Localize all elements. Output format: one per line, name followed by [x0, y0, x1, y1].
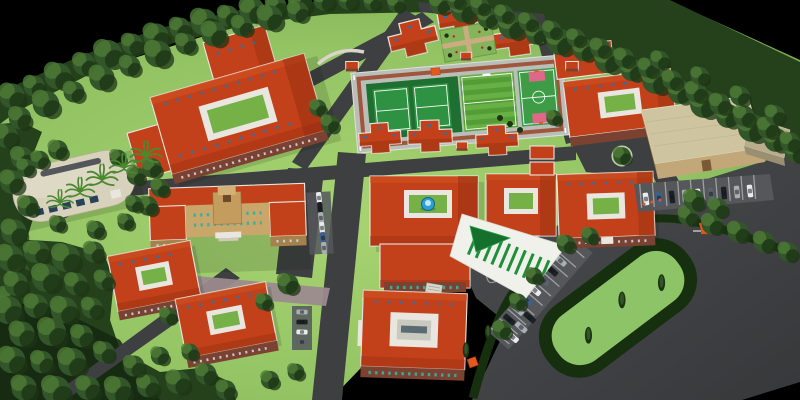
right-wing-roof	[269, 201, 306, 236]
conifer-tree	[485, 325, 491, 339]
campus-render-stage	[0, 0, 800, 400]
campus-aerial-render	[0, 0, 800, 400]
car	[296, 320, 307, 325]
small-parking-south	[292, 306, 312, 350]
hall-door	[701, 159, 711, 171]
garden-pavilion	[346, 62, 359, 72]
car	[721, 186, 727, 199]
south-courtyard-building	[356, 290, 471, 381]
conifer-tree	[585, 327, 592, 344]
traffic-cone	[659, 199, 662, 202]
basketball-hoop	[534, 70, 538, 72]
hedge-bush	[507, 121, 513, 127]
pitch-kiosk	[431, 68, 441, 76]
basketball-hoop	[539, 122, 543, 124]
entrance-canopy	[215, 232, 241, 239]
traffic-cone	[643, 203, 646, 206]
garden-pavilion	[461, 52, 472, 60]
traffic-cone	[651, 201, 654, 204]
car	[296, 329, 307, 334]
garden-pavilion	[566, 62, 579, 72]
admin-street-parking	[306, 191, 333, 254]
car	[296, 340, 307, 345]
garden-pavilion	[456, 142, 467, 151]
car	[296, 309, 307, 314]
conifer-tree	[618, 292, 625, 309]
hedge-bush	[517, 127, 523, 133]
entrance	[601, 237, 613, 244]
hedge-bush	[497, 115, 503, 121]
car	[321, 242, 327, 254]
conifer-tree	[463, 342, 470, 357]
conifer-tree	[658, 274, 665, 291]
